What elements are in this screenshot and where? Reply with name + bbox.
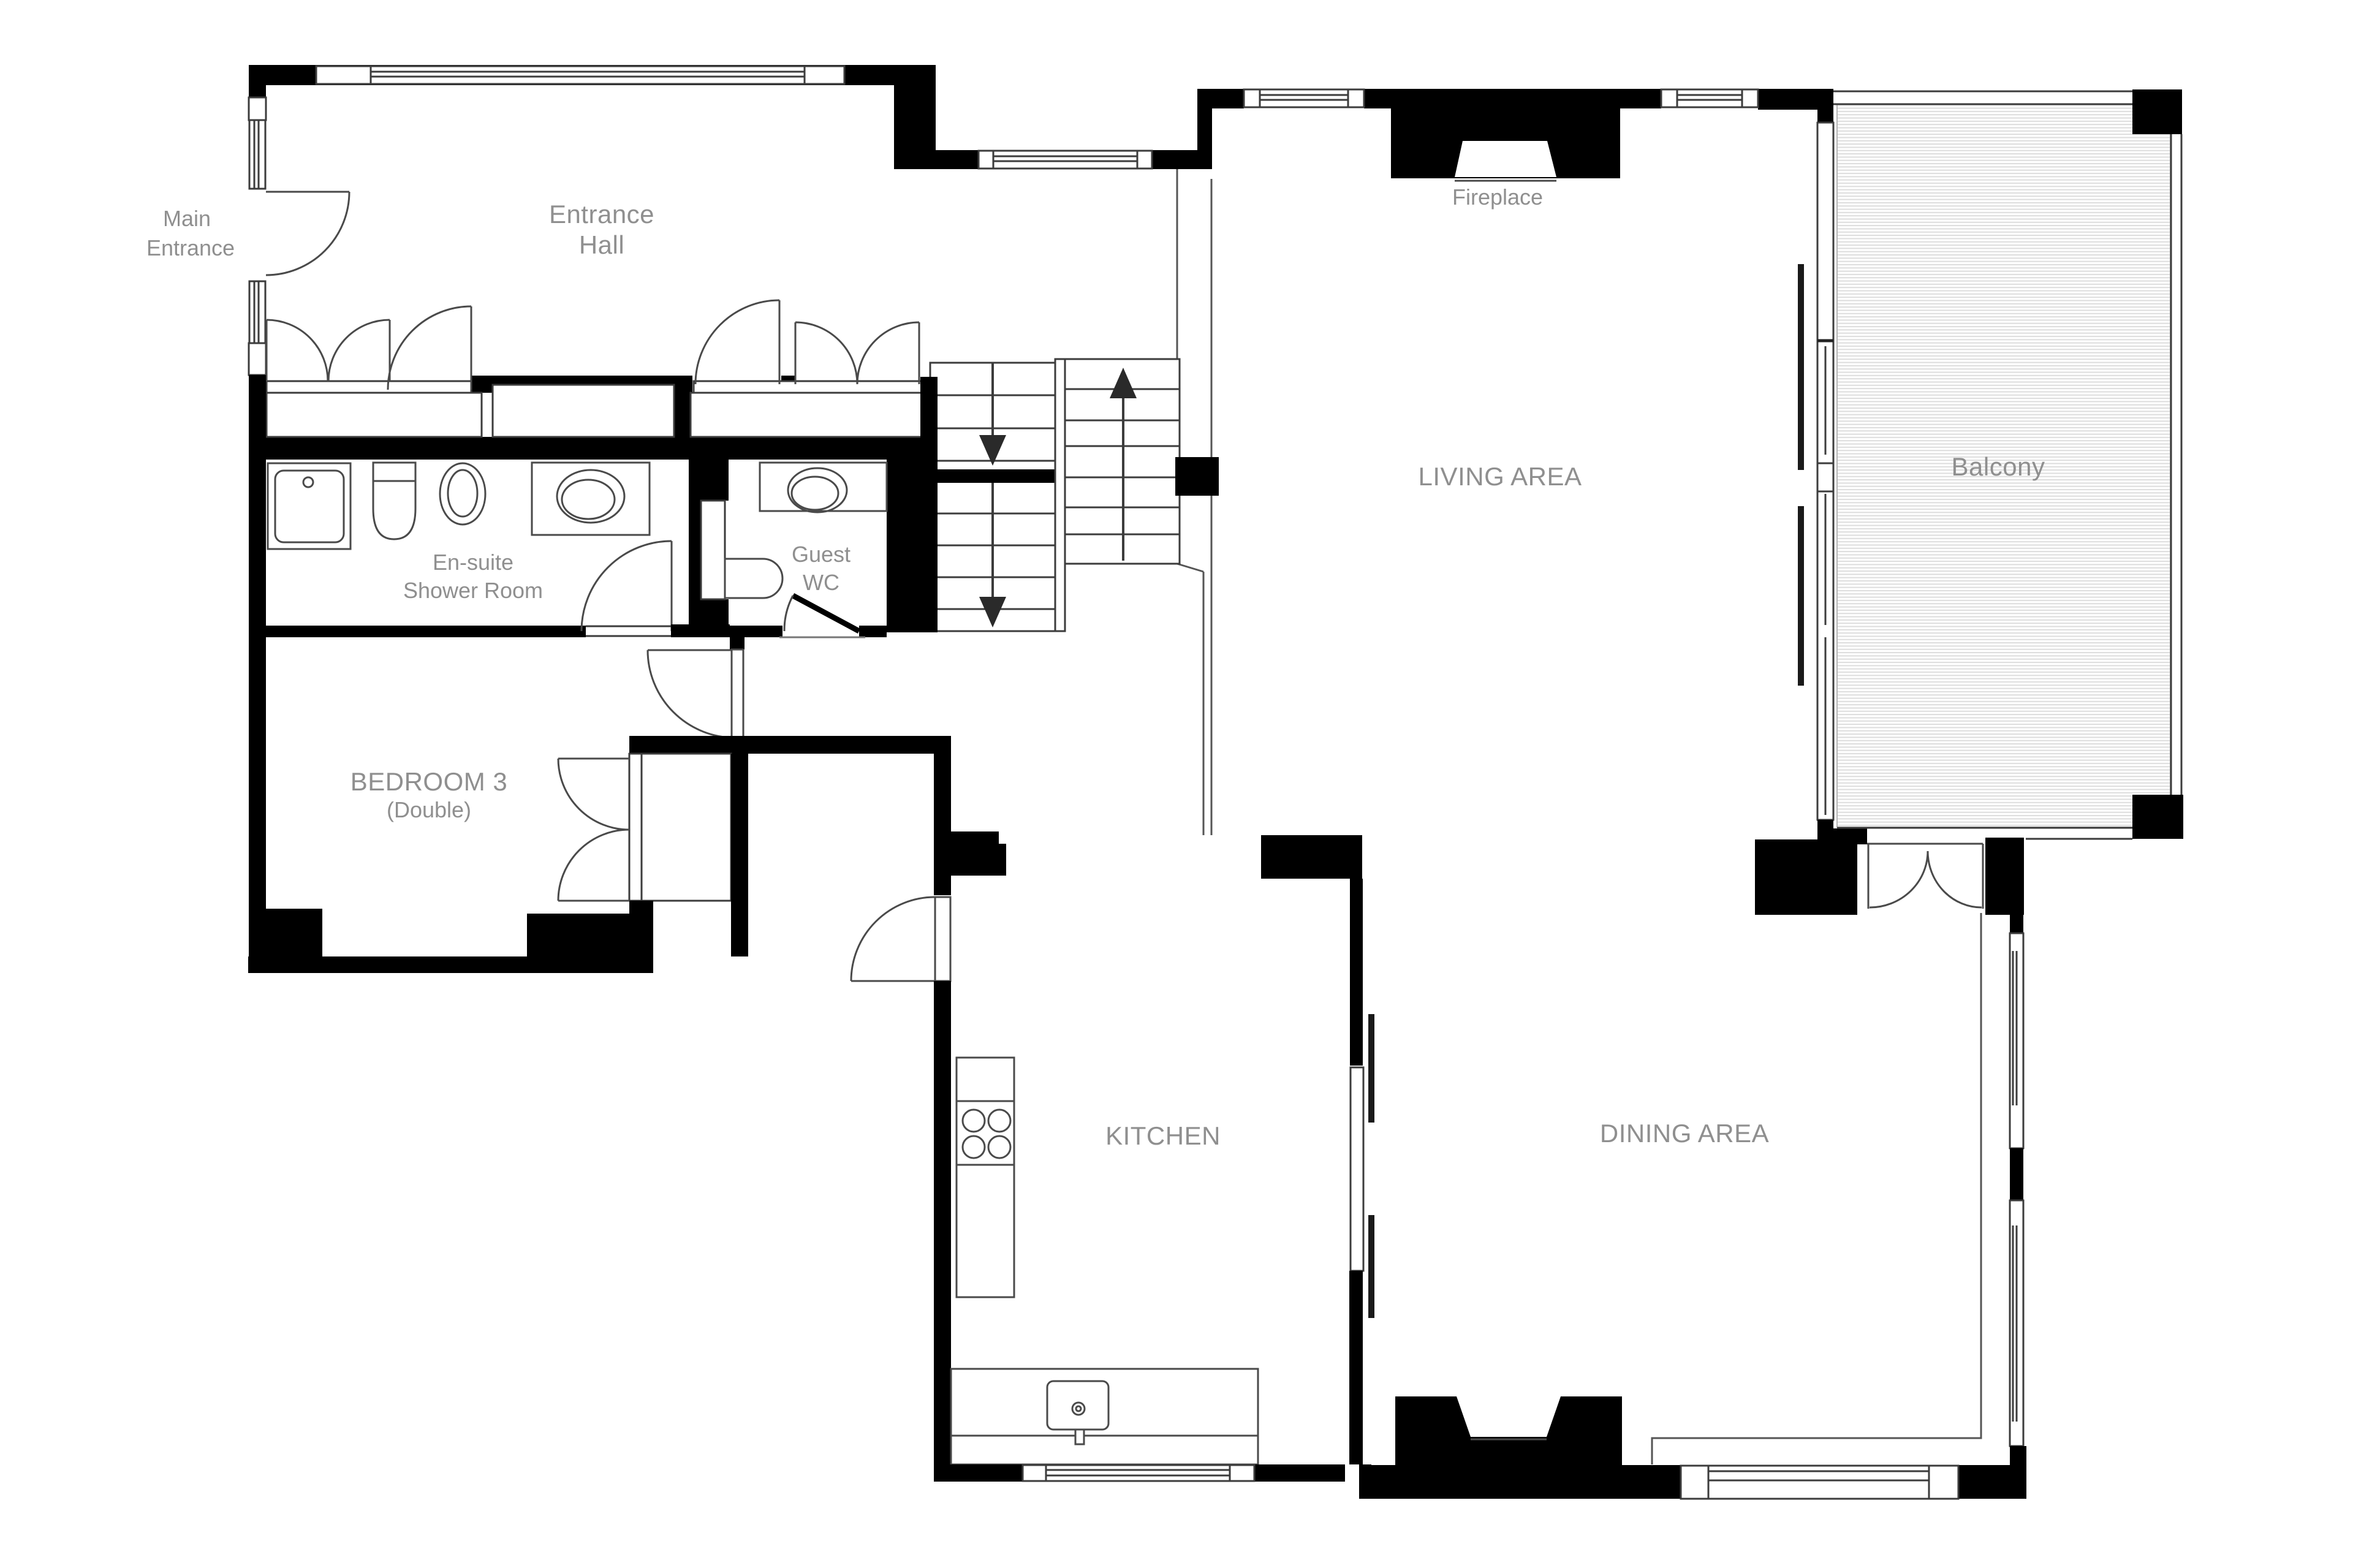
svg-text:Hall: Hall bbox=[579, 230, 624, 259]
svg-text:Balcony: Balcony bbox=[1952, 452, 2045, 481]
svg-text:Shower Room: Shower Room bbox=[403, 578, 543, 603]
svg-text:DINING AREA: DINING AREA bbox=[1600, 1119, 1769, 1148]
svg-text:BEDROOM 3: BEDROOM 3 bbox=[350, 767, 508, 796]
svg-text:LIVING AREA: LIVING AREA bbox=[1419, 462, 1582, 491]
svg-text:KITCHEN: KITCHEN bbox=[1105, 1121, 1221, 1150]
svg-text:(Double): (Double) bbox=[387, 797, 471, 822]
svg-text:Guest: Guest bbox=[792, 542, 851, 567]
svg-text:Main: Main bbox=[163, 206, 211, 231]
svg-text:WC: WC bbox=[803, 570, 839, 595]
svg-text:Entrance: Entrance bbox=[549, 200, 654, 229]
svg-text:Fireplace: Fireplace bbox=[1452, 184, 1543, 210]
svg-text:Entrance: Entrance bbox=[146, 235, 235, 260]
svg-text:En-suite: En-suite bbox=[433, 550, 513, 575]
